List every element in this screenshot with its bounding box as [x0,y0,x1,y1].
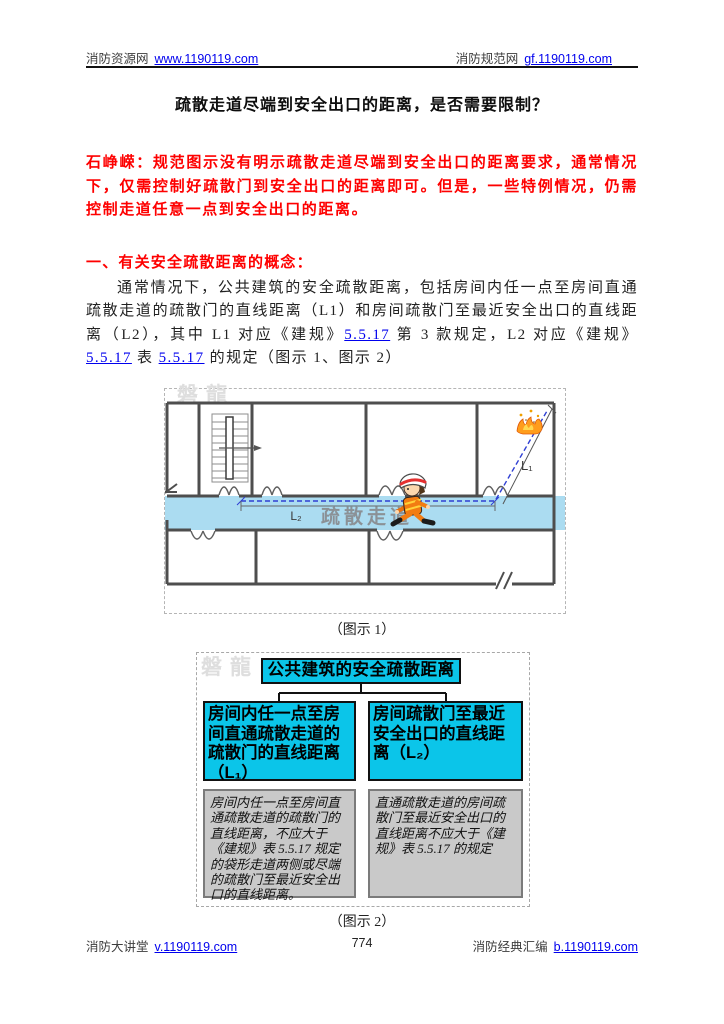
para-seg2: 第 3 款规定，L2 对应《建规》 [390,327,638,343]
l2-label: L₂ [290,509,302,523]
stair-arrowhead [254,445,262,451]
concept-paragraph: 通常情况下，公共建筑的安全疏散距离，包括房间内任一点至房间直通疏散走道的疏散门的… [86,277,638,371]
l1-label: L₁ [521,458,533,473]
diagram-branch-left: 房间内任一点至房间直通疏散走道的疏散门的直线距离（L₁） [203,701,356,781]
code-link-5517-c[interactable]: 5.5.17 [159,350,205,366]
diagram-root-box: 公共建筑的安全疏散距离 [261,658,461,684]
code-link-5517-b[interactable]: 5.5.17 [86,350,132,366]
header-right-link[interactable]: gf.1190119.com [524,52,612,66]
figure2-diagram: 磐龍 公共建筑的安全疏散距离 房间内任一点至房间直通疏散走道的疏散门的直线距离（… [196,652,530,907]
diagram-note-left: 房间内任一点至房间直通疏散走道的疏散门的直线距离，不应大于《建规》表 5.5.1… [203,789,356,898]
floor-plan-drawing: L₂ L₁ 疏散走道 [165,389,565,613]
para-seg4: 的规定（图示 1、图示 2） [205,350,402,366]
header-left: 消防资源网www.1190119.com [86,48,258,67]
header-left-label: 消防资源网 [86,52,149,66]
document-page: 消防资源网www.1190119.com 消防规范网gf.1190119.com… [0,0,724,1024]
diagram-branch-right: 房间疏散门至最近安全出口的直线距离（L₂） [368,701,523,781]
intro-paragraph: 石峥嵘：规范图示没有明示疏散走道尽端到安全出口的距离要求，通常情况下，仅需控制好… [86,151,638,222]
page-title: 疏散走道尽端到安全出口的距离，是否需要限制？ [0,91,724,115]
figure2-caption: （图示 2） [0,911,724,931]
page-footer: 774 消防大讲堂v.1190119.com 消防经典汇编b.1190119.c… [86,936,638,955]
fire-icon [517,410,542,434]
figure1-caption: （图示 1） [0,619,724,639]
page-number: 774 [86,936,638,950]
header-right: 消防规范网gf.1190119.com [456,48,638,67]
header-right-label: 消防规范网 [456,52,519,66]
page-header: 消防资源网www.1190119.com 消防规范网gf.1190119.com [86,48,638,67]
code-link-5517-a[interactable]: 5.5.17 [344,327,390,343]
section-heading: 一、有关安全疏散距离的概念： [86,251,313,272]
para-seg3: 表 [132,350,159,366]
diagram-note-right: 直通疏散走道的房间疏散门至最近安全出口的直线距离不应大于《建规》表 5.5.17… [368,789,523,898]
header-left-link[interactable]: www.1190119.com [155,52,259,66]
header-divider [86,66,638,68]
figure1-floor-plan: 磐龍 L₂ L₁ 疏散走道 [164,388,566,614]
wall-break-symbol [496,572,512,589]
